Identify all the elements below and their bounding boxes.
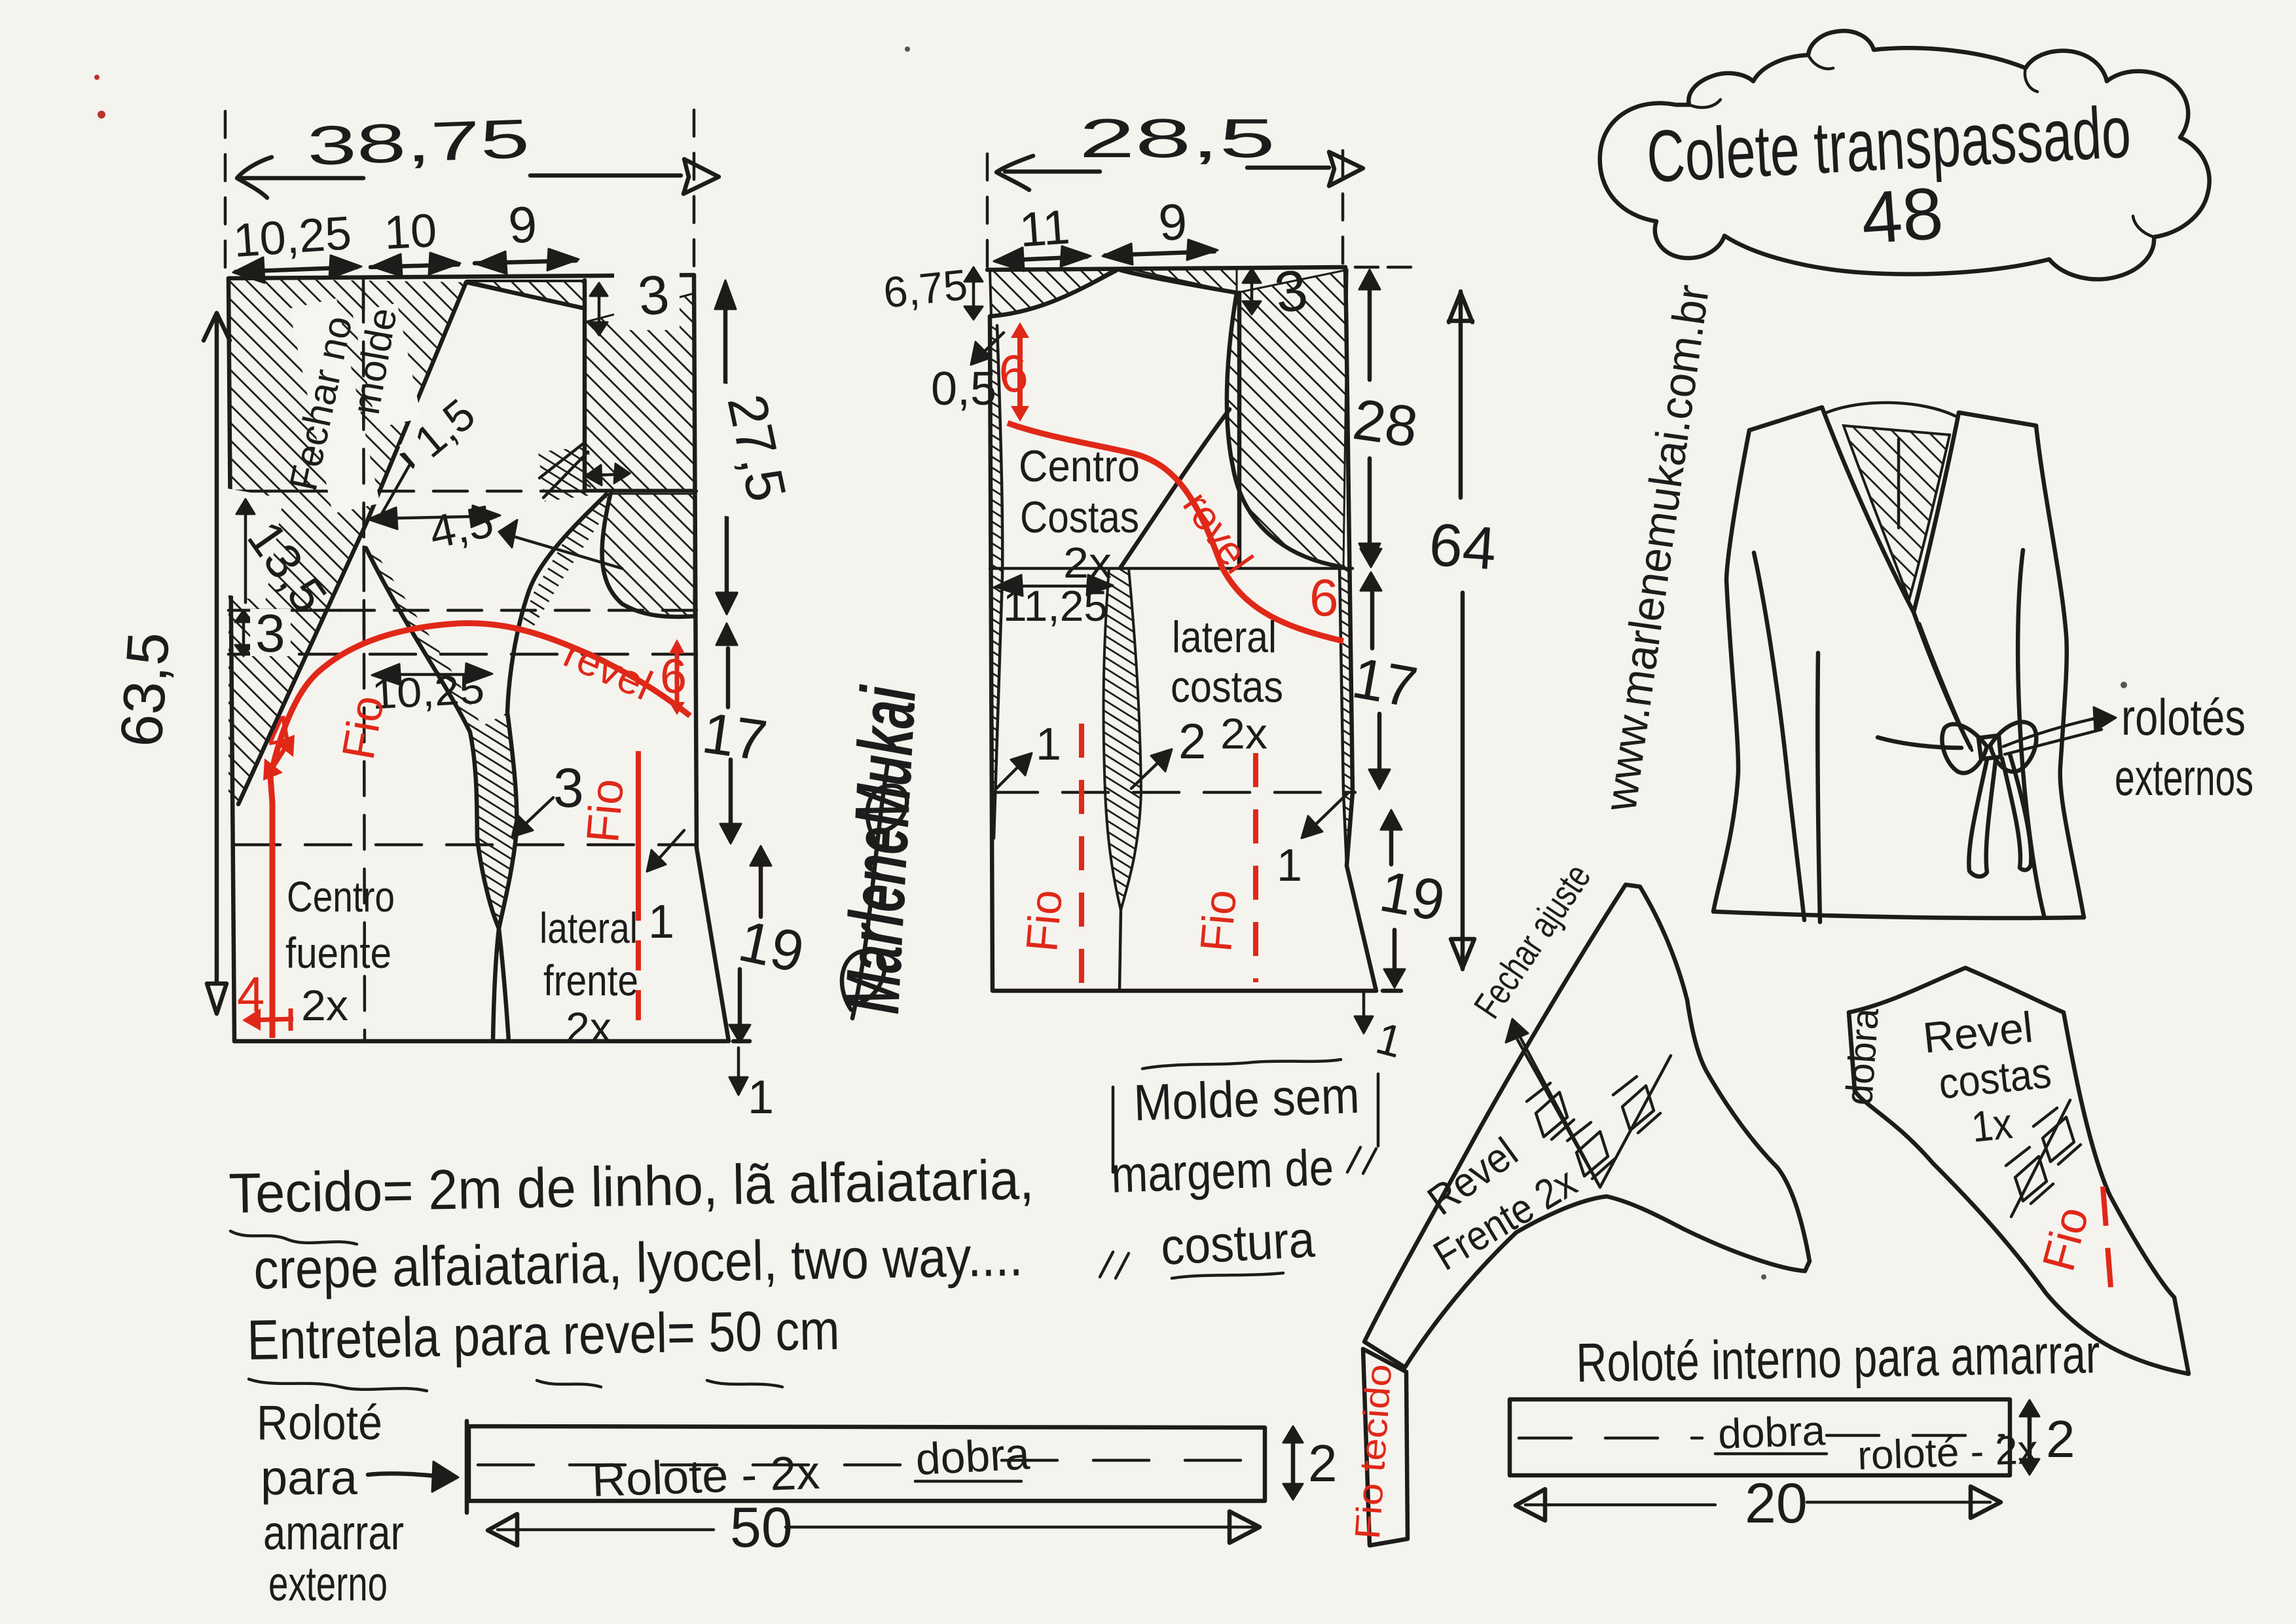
svg-text:1: 1 <box>648 896 674 948</box>
svg-text:3: 3 <box>635 263 672 327</box>
svg-text:Fio: Fio <box>577 777 633 845</box>
svg-text:0,5: 0,5 <box>931 363 996 415</box>
svg-text:48: 48 <box>1859 172 1946 259</box>
svg-text:2: 2 <box>2046 1410 2075 1468</box>
svg-text:6: 6 <box>996 343 1030 404</box>
svg-text:2x: 2x <box>566 1003 611 1052</box>
svg-text:externo: externo <box>268 1557 388 1611</box>
svg-text:28: 28 <box>1349 386 1422 460</box>
svg-text:amarrar: amarrar <box>263 1505 404 1560</box>
svg-text:costura: costura <box>1159 1210 1317 1276</box>
svg-text:lateral: lateral <box>1172 612 1277 662</box>
svg-text:dobra: dobra <box>1838 1006 1887 1107</box>
svg-text:9: 9 <box>507 195 539 255</box>
svg-text:6: 6 <box>660 649 687 703</box>
svg-text:Fio: Fio <box>1017 888 1072 954</box>
svg-text:dobra: dobra <box>1717 1407 1827 1458</box>
svg-text:Costas: Costas <box>1020 492 1139 542</box>
svg-text:17: 17 <box>699 700 771 773</box>
svg-text:63,5: 63,5 <box>109 630 182 749</box>
svg-text:1: 1 <box>748 1071 774 1124</box>
svg-text:2x: 2x <box>1220 709 1267 758</box>
svg-text:3: 3 <box>255 604 285 663</box>
svg-text:dobra: dobra <box>915 1429 1031 1485</box>
svg-text:2: 2 <box>1178 714 1206 769</box>
svg-text:10: 10 <box>383 204 438 259</box>
svg-text:19: 19 <box>1375 858 1449 933</box>
svg-text:2: 2 <box>1308 1434 1338 1492</box>
svg-text:Molde sem: Molde sem <box>1133 1066 1360 1132</box>
svg-text:28,5: 28,5 <box>1079 107 1275 169</box>
svg-text:Centro: Centro <box>287 872 395 921</box>
svg-text:50: 50 <box>730 1496 793 1559</box>
svg-text:frente: frente <box>543 956 638 1005</box>
svg-text:Fio: Fio <box>1191 888 1246 954</box>
svg-text:1: 1 <box>1036 718 1061 769</box>
svg-text:2x: 2x <box>301 981 348 1029</box>
svg-text:crepe alfaiataria, lyocel, two: crepe alfaiataria, lyocel, two way.... <box>253 1225 1023 1301</box>
svg-text:38,75: 38,75 <box>306 107 530 177</box>
svg-text:64: 64 <box>1427 511 1499 583</box>
svg-text:6,75: 6,75 <box>881 260 970 317</box>
svg-text:rolotés: rolotés <box>2121 688 2246 746</box>
svg-text:10,25: 10,25 <box>232 207 353 267</box>
svg-text:lateral: lateral <box>539 904 638 952</box>
svg-text:Fio: Fio <box>333 692 394 763</box>
svg-text:1x: 1x <box>1969 1099 2014 1151</box>
svg-text:17: 17 <box>1347 645 1422 720</box>
svg-text:roloté - 2x: roloté - 2x <box>1857 1427 2039 1479</box>
svg-text:Roloté: Roloté <box>257 1395 382 1450</box>
svg-text:costas: costas <box>1171 662 1283 712</box>
svg-text:11,25: 11,25 <box>1003 581 1108 630</box>
svg-text:externos: externos <box>2115 748 2253 806</box>
svg-text:11: 11 <box>1017 199 1071 257</box>
svg-text:fuente: fuente <box>285 929 392 977</box>
svg-text:margem de: margem de <box>1110 1138 1335 1204</box>
svg-text:Roloté interno para amarrar: Roloté interno para amarrar <box>1576 1323 2101 1393</box>
svg-text:19: 19 <box>733 908 809 985</box>
svg-text:6: 6 <box>1309 568 1339 627</box>
svg-text:Entretela para revel= 50 cm: Entretela para revel= 50 cm <box>247 1299 841 1372</box>
svg-text:20: 20 <box>1745 1472 1808 1535</box>
svg-text:1: 1 <box>1277 840 1302 891</box>
svg-text:para: para <box>261 1450 358 1505</box>
svg-text:9: 9 <box>1157 193 1189 252</box>
